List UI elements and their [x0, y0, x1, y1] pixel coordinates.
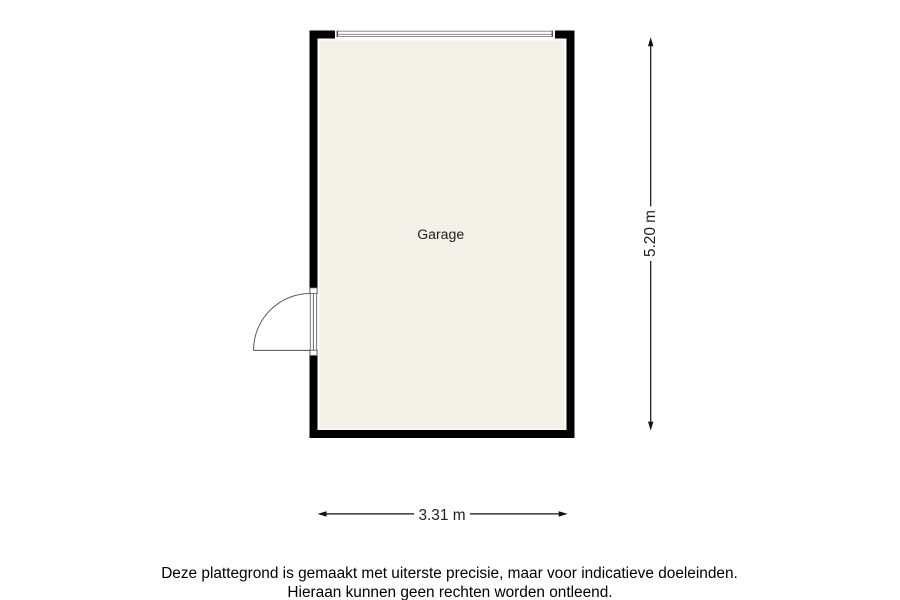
- svg-text:3.31 m: 3.31 m: [418, 507, 465, 524]
- svg-text:Hieraan kunnen geen rechten wo: Hieraan kunnen geen rechten worden ontle…: [287, 584, 612, 600]
- svg-text:Deze plattegrond is gemaakt me: Deze plattegrond is gemaakt met uiterste…: [161, 565, 738, 582]
- svg-text:5.20 m: 5.20 m: [642, 210, 659, 257]
- svg-text:Garage: Garage: [417, 226, 464, 242]
